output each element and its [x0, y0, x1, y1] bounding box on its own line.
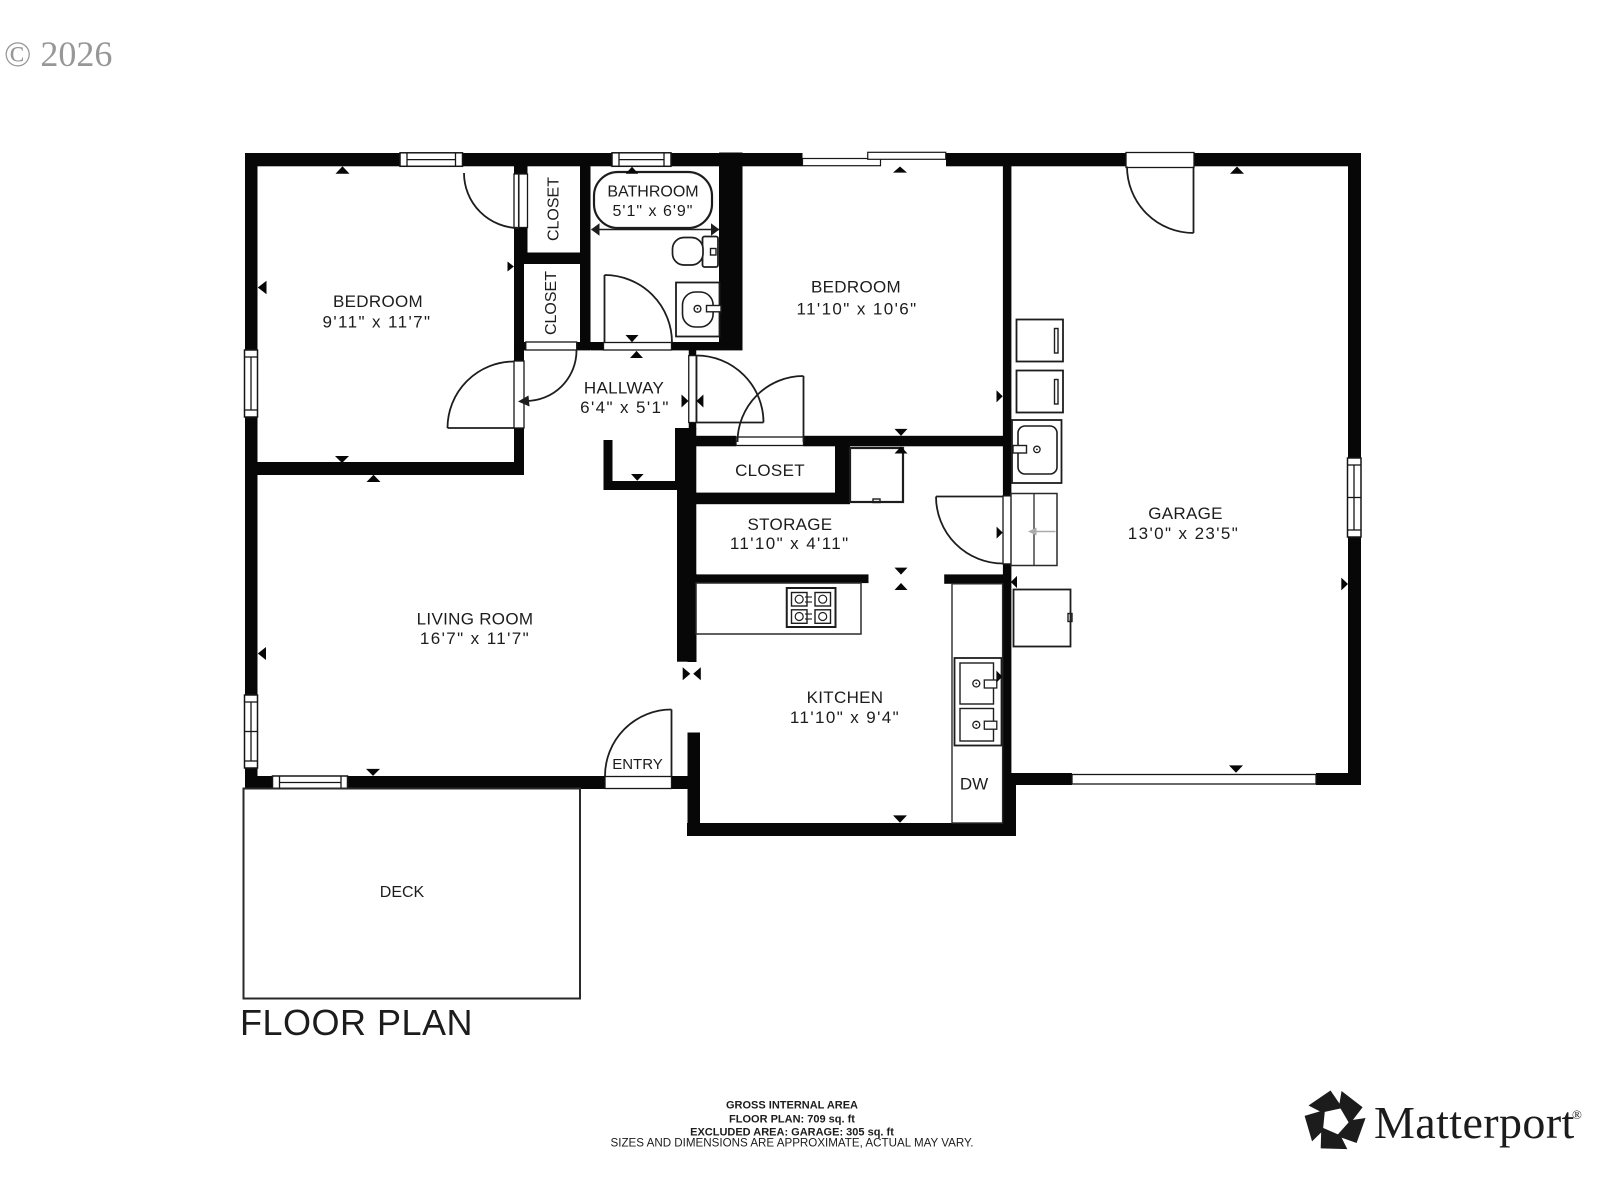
- svg-text:BATHROOM: BATHROOM: [607, 184, 698, 201]
- svg-text:GROSS INTERNAL AREA: GROSS INTERNAL AREA: [726, 1099, 858, 1111]
- svg-text:© 2026: © 2026: [4, 34, 112, 74]
- svg-text:Matterport: Matterport: [1374, 1097, 1575, 1148]
- svg-text:BEDROOM: BEDROOM: [811, 278, 901, 297]
- svg-text:11'10" x 10'6": 11'10" x 10'6": [796, 300, 917, 319]
- svg-text:9'11" x 11'7": 9'11" x 11'7": [323, 313, 432, 332]
- svg-text:13'0" x 23'5": 13'0" x 23'5": [1128, 524, 1239, 543]
- svg-text:FLOOR PLAN: 709 sq. ft: FLOOR PLAN: 709 sq. ft: [729, 1113, 855, 1125]
- svg-text:STORAGE: STORAGE: [748, 515, 833, 534]
- svg-text:KITCHEN: KITCHEN: [807, 688, 884, 707]
- svg-text:6'4" x 5'1": 6'4" x 5'1": [580, 398, 670, 417]
- svg-text:FLOOR PLAN: FLOOR PLAN: [240, 1002, 473, 1043]
- svg-text:16'7" x 11'7": 16'7" x 11'7": [420, 629, 530, 648]
- svg-text:11'10" x 4'11": 11'10" x 4'11": [730, 534, 850, 553]
- svg-text:BEDROOM: BEDROOM: [333, 292, 423, 311]
- svg-text:SIZES AND DIMENSIONS ARE APPRO: SIZES AND DIMENSIONS ARE APPROXIMATE, AC…: [611, 1137, 974, 1150]
- svg-text:CLOSET: CLOSET: [735, 461, 805, 480]
- svg-text:LIVING ROOM: LIVING ROOM: [417, 610, 534, 629]
- svg-text:5'1" x 6'9": 5'1" x 6'9": [613, 203, 694, 220]
- svg-text:CLOSET: CLOSET: [543, 271, 560, 335]
- svg-text:GARAGE: GARAGE: [1148, 504, 1223, 523]
- svg-text:DECK: DECK: [380, 884, 425, 901]
- svg-text:HALLWAY: HALLWAY: [584, 379, 664, 398]
- svg-text:11'10" x 9'4": 11'10" x 9'4": [790, 708, 900, 727]
- svg-text:DW: DW: [960, 775, 988, 794]
- svg-text:®: ®: [1572, 1107, 1582, 1122]
- svg-text:CLOSET: CLOSET: [546, 177, 563, 241]
- svg-text:ENTRY: ENTRY: [612, 756, 663, 773]
